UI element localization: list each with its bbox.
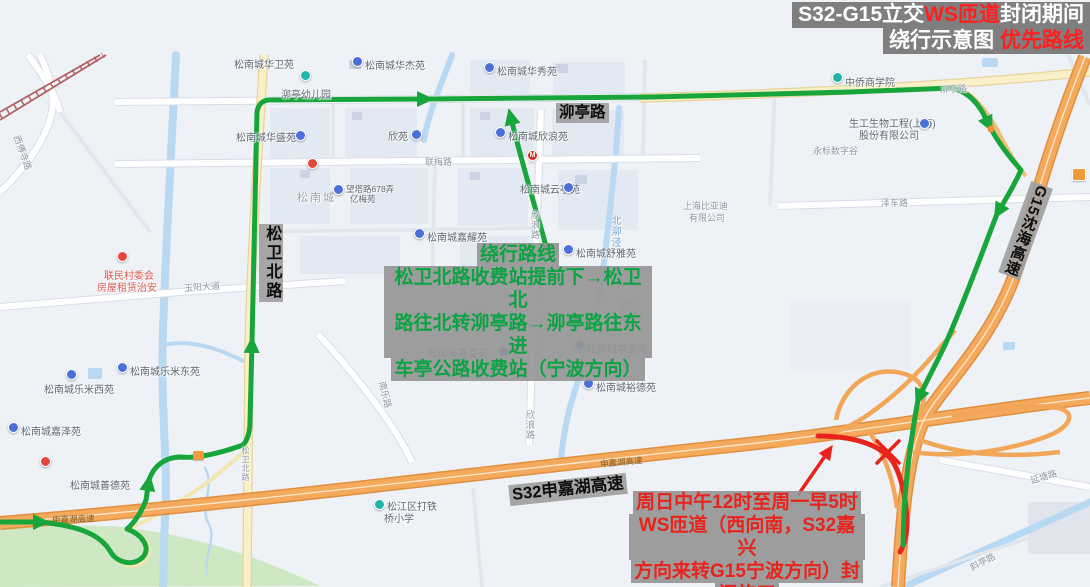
community-pin-icon[interactable] xyxy=(484,62,495,73)
college-pin-icon[interactable] xyxy=(832,72,843,83)
road-label: 玉阳大道 xyxy=(184,279,221,294)
poi-label: 松南城乐米西苑 xyxy=(44,381,114,396)
community-pin-icon[interactable] xyxy=(117,362,128,373)
poi-label: 房屋租赁治安 xyxy=(97,279,157,294)
poi-label: 松南城华杰苑 xyxy=(365,57,425,72)
closure-note: 周日中午12时至周一早5时 WS匝道（西向南，S32嘉兴 方向来转G15宁波方向… xyxy=(629,491,865,587)
community-pin-icon[interactable] xyxy=(495,127,506,138)
community-pin-icon[interactable] xyxy=(414,228,425,239)
kindergarten-pin-icon[interactable] xyxy=(300,70,311,81)
title-ws-ramp: WS匝道 xyxy=(924,3,1000,26)
road-badge-maoting: 泖亭路 xyxy=(556,103,609,123)
detour-note: 绕行路线 松卫北路收费站提前下→松卫北 路往北转泖亭路→泖亭路往东进 车亭公路收… xyxy=(384,243,652,381)
poi-label: 松南城嘉泽苑 xyxy=(21,423,81,438)
road-label: 欣浪路 xyxy=(529,210,542,240)
company-label: 有限公司 xyxy=(689,211,725,224)
poi-label: 松南城嘉耀苑 xyxy=(427,229,487,244)
poi-label: 欣苑 xyxy=(388,128,408,143)
community-pin-icon[interactable] xyxy=(66,369,77,380)
poi-label: 松南城欣浪苑 xyxy=(508,128,568,143)
road-label: 欣浪路 xyxy=(524,410,537,440)
closure-pointer-arrow xyxy=(798,449,830,495)
title-line-2: 绕行示意图 优先路线 xyxy=(883,28,1090,54)
community-pin-icon[interactable] xyxy=(563,182,574,193)
poi-label: 泖亭幼儿园 xyxy=(281,86,331,101)
poi-label: 中侨商学院 xyxy=(845,74,895,89)
company-pin-icon[interactable] xyxy=(919,118,930,129)
poi-label: 松南城华盛苑 xyxy=(236,129,296,144)
road-label: 联梅路 xyxy=(425,155,452,168)
ramp-dot-icon xyxy=(988,126,995,133)
community-pin-icon[interactable] xyxy=(295,130,306,141)
bus-station-icon[interactable] xyxy=(193,451,204,460)
road-label: 松卫北路 xyxy=(240,446,251,482)
toll-station-icon[interactable] xyxy=(1072,168,1086,181)
community-pin-icon[interactable] xyxy=(8,422,19,433)
school-pin-icon[interactable] xyxy=(374,499,385,510)
title-line-1: S32-G15立交WS匝道封闭期间 xyxy=(792,2,1090,28)
community-pin-icon[interactable] xyxy=(411,129,422,140)
poi-label: 松南城乐米东苑 xyxy=(130,363,200,378)
poi-label: 桥小学 xyxy=(384,510,414,525)
poi-label: 永标数字谷 xyxy=(813,144,858,157)
title-banner: S32-G15立交WS匝道封闭期间 绕行示意图 优先路线 xyxy=(792,2,1090,54)
community-pin-icon[interactable] xyxy=(352,56,363,67)
road-label: 泽车路 xyxy=(881,196,908,209)
map-canvas[interactable]: 松南城华卫苑 松南城华杰苑 松南城华秀苑 泖亭幼儿园 松南城华盛苑 欣苑 松南城… xyxy=(0,0,1090,587)
district-label: 松南城 xyxy=(297,189,336,205)
highway-label: 申嘉湖高速 xyxy=(52,512,95,525)
road-badge-songwei: 松卫北路 xyxy=(259,224,283,302)
poi-label: 松南城华卫苑 xyxy=(234,56,294,71)
village-committee-pin-icon[interactable] xyxy=(117,251,128,262)
poi-pin-icon[interactable] xyxy=(307,158,318,169)
detour-note-heading: 绕行路线 xyxy=(477,243,559,266)
title-priority-route: 优先路线 xyxy=(1000,29,1084,52)
road-label: 泖亭路 xyxy=(940,81,968,95)
poi-label: 松南城华秀苑 xyxy=(497,63,557,78)
poi-pin-icon[interactable] xyxy=(40,456,51,467)
poi-label: 松南城裕德苑 xyxy=(596,379,656,394)
company-label: 股份有限公司 xyxy=(859,127,919,142)
poi-label: 松南城善德苑 xyxy=(70,477,130,492)
poi-label: 亿梅苑 xyxy=(350,193,376,205)
restaurant-pin-icon[interactable]: M xyxy=(527,150,538,161)
community-pin-icon[interactable] xyxy=(333,184,344,195)
